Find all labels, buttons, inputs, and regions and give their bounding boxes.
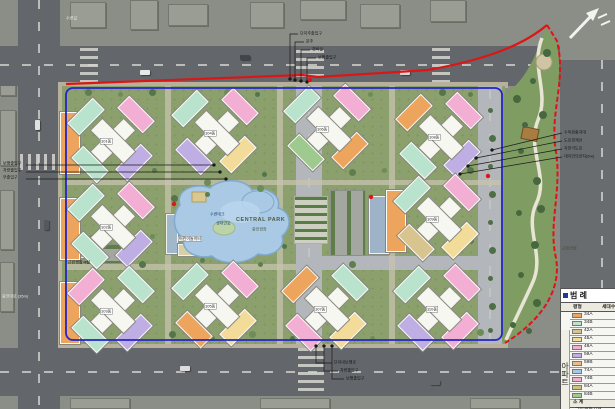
- car: [180, 366, 190, 371]
- building-id-label: 104동: [204, 130, 216, 137]
- context-block: [70, 398, 130, 409]
- retail-label: 근린생활시설: [68, 260, 90, 265]
- context-block: [430, 0, 466, 22]
- annotation-left-1: 보행출입구: [3, 161, 21, 166]
- apartment-building-cluster: 103동: [64, 268, 160, 360]
- legend-panel: 범 례 평형 세대수 아파트 34A 34B 42A 45A 48A 59A: [560, 288, 615, 409]
- legend-swatch: [572, 361, 582, 366]
- building-id-label: 102동: [100, 224, 112, 231]
- legend-swatch: [572, 321, 582, 326]
- annotation-right-2: 도로경계선: [564, 138, 582, 143]
- site-plan-canvas: 101동 104동 106동 108동: [0, 0, 615, 409]
- legend-row-label: 42A: [584, 327, 593, 332]
- building-id-label: 108동: [428, 134, 440, 141]
- legend-swatch: [572, 369, 582, 374]
- legend-row-label: 84B: [584, 391, 593, 396]
- legend-row-label: 48A: [584, 343, 593, 348]
- park-name-label: 근린공원: [562, 246, 577, 251]
- car: [35, 120, 40, 130]
- apartment-building-cluster: 109동: [390, 176, 486, 268]
- building-id-label: 103동: [100, 308, 112, 315]
- apartment-building-cluster: 108동: [392, 94, 488, 186]
- crosswalk: [432, 48, 450, 84]
- context-block: [260, 398, 330, 409]
- road-name-left: 중앙대로 (35m): [2, 294, 37, 299]
- legend-title: 범 례: [561, 289, 615, 303]
- annotation-top-4: 보행출입구: [318, 55, 336, 60]
- sports-court: [166, 214, 178, 254]
- legend-group-apartment: 아파트: [561, 330, 570, 409]
- lane-line: [489, 90, 491, 342]
- north-arrow-icon: [570, 8, 610, 38]
- legend-row-label: 59A: [584, 351, 593, 356]
- annotation-bottom-2: 차량출입구: [340, 368, 358, 373]
- apartment-building-cluster: 106동: [280, 86, 376, 178]
- building-id-label: 105동: [204, 303, 216, 310]
- context-block: [0, 262, 14, 312]
- car: [400, 70, 410, 75]
- crosswalk: [20, 154, 58, 170]
- legend-row-label: 84A: [584, 383, 593, 388]
- legend-swatch: [572, 329, 582, 334]
- building-id-label: 101동: [100, 138, 112, 145]
- annotation-bottom-1: 단지내보행로: [334, 360, 356, 365]
- legend-swatch: [572, 353, 582, 358]
- context-block: [360, 4, 400, 28]
- central-park-title: CENTRAL PARK: [236, 216, 285, 222]
- annotation-right-4: 대지안의공지(6m): [564, 154, 594, 159]
- building-id-label: 107동: [314, 306, 326, 313]
- legend-swatch: [572, 345, 582, 350]
- crosswalk: [80, 48, 98, 84]
- context-block: [130, 0, 158, 30]
- playground-area: [178, 244, 200, 256]
- parking-lot: [330, 190, 366, 256]
- park-pavilion: [521, 126, 539, 141]
- annotation-left-2: 차량출입구: [3, 168, 21, 173]
- legend-swatch: [572, 377, 582, 382]
- context-block: [70, 2, 106, 28]
- context-block: [250, 2, 284, 28]
- context-block: [470, 398, 520, 409]
- building-id-label: 109동: [426, 216, 438, 223]
- context-block: [300, 0, 346, 20]
- building-id-label: 110동: [426, 306, 438, 313]
- annotation-top-1: 단지주출입구: [300, 31, 322, 36]
- annotation-top-3: 경비실: [312, 47, 323, 52]
- apartment-building-cluster: 104동: [168, 90, 264, 182]
- legend-row-label: 34B: [584, 319, 593, 324]
- annotation-right-3: 자전거도로: [564, 146, 582, 151]
- context-block: [0, 190, 14, 250]
- apartment-building-cluster: 101동: [64, 98, 160, 190]
- legend-swatch: [572, 337, 582, 342]
- park-trees: [0, 0, 6, 6]
- legend-row-label: 59B: [584, 359, 593, 364]
- context-block: [0, 110, 16, 166]
- car: [44, 220, 49, 230]
- legend-row-label: 74A: [584, 367, 593, 372]
- road-name-top: 수변길: [66, 16, 77, 21]
- central-park-subtitle: 중앙광장: [252, 227, 267, 232]
- annotation-right-1: 수목완충지대: [564, 130, 586, 135]
- pond-label-2: 생태연못: [216, 221, 231, 226]
- legend-row-label: 34A: [584, 311, 593, 316]
- apartment-building-cluster: 110동: [390, 266, 486, 358]
- apartment-building-cluster: 105동: [168, 263, 264, 355]
- building-id-label: 106동: [316, 126, 328, 133]
- context-block: [168, 4, 208, 26]
- car: [240, 55, 250, 60]
- pond-label-1: 수변데크: [210, 212, 225, 217]
- annotation-left-3: 부출입구: [3, 175, 18, 180]
- apartment-building-cluster: 107동: [278, 266, 374, 358]
- car: [430, 380, 440, 385]
- playground-label: 어린이놀이터: [178, 236, 202, 242]
- lane-line: [38, 0, 40, 409]
- pergola-plaza: [294, 196, 328, 244]
- legend-swatch: [572, 385, 582, 390]
- legend-rows: 34A 34B 42A 45A 48A 59A 59B 74A 74B 84: [570, 312, 615, 400]
- legend-row-label: 74B: [584, 375, 593, 380]
- legend-title-icon: [563, 293, 568, 298]
- annotation-top-2: 문주: [306, 39, 313, 44]
- legend-swatch: [572, 313, 582, 318]
- annotation-bottom-3: 보행출입구: [346, 376, 364, 381]
- car: [140, 70, 150, 75]
- legend-row-label: 45A: [584, 335, 593, 340]
